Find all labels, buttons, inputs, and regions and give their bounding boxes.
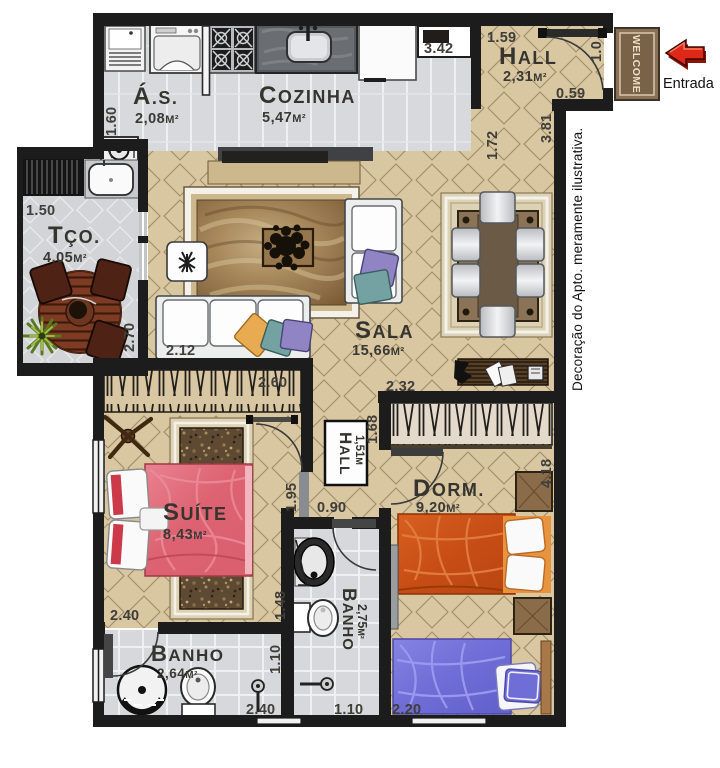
svg-text:2.12: 2.12 — [166, 343, 195, 359]
svg-text:2.40: 2.40 — [110, 608, 139, 624]
svg-text:1.72: 1.72 — [485, 131, 501, 160]
svg-text:3.42: 3.42 — [424, 41, 453, 57]
svg-text:COZINHA: COZINHA — [259, 82, 356, 109]
svg-text:4.18: 4.18 — [539, 459, 555, 488]
svg-text:1.48: 1.48 — [273, 591, 289, 620]
svg-text:1.95: 1.95 — [284, 483, 300, 512]
svg-text:5,47M²: 5,47M² — [262, 110, 306, 126]
svg-text:1.68: 1.68 — [365, 415, 381, 444]
svg-text:4,05M²: 4,05M² — [43, 250, 87, 266]
svg-text:SALA: SALA — [355, 317, 414, 344]
svg-text:2,75M²: 2,75M² — [355, 604, 369, 639]
svg-text:9,20M²: 9,20M² — [416, 500, 460, 516]
svg-text:15,66M²: 15,66M² — [352, 343, 405, 359]
svg-text:2,31M²: 2,31M² — [503, 69, 547, 85]
svg-text:HALL: HALL — [336, 432, 355, 476]
svg-text:1.59: 1.59 — [487, 30, 516, 46]
svg-text:1,51M: 1,51M — [353, 435, 365, 465]
svg-text:2.40: 2.40 — [246, 702, 275, 718]
svg-text:2.70: 2.70 — [122, 323, 138, 352]
svg-text:WELCOME: WELCOME — [630, 35, 642, 93]
svg-text:HALL: HALL — [499, 43, 557, 70]
svg-text:Entrada: Entrada — [663, 76, 715, 92]
svg-text:2,08M²: 2,08M² — [135, 111, 179, 127]
svg-text:1.0: 1.0 — [589, 41, 605, 62]
svg-text:DORM.: DORM. — [413, 475, 485, 502]
svg-text:SUÍTE: SUÍTE — [163, 499, 228, 526]
svg-text:1.50: 1.50 — [26, 203, 55, 219]
svg-text:1.10: 1.10 — [268, 645, 284, 674]
svg-text:3.81: 3.81 — [539, 114, 555, 143]
svg-text:0.90: 0.90 — [317, 500, 346, 516]
svg-text:1.10: 1.10 — [334, 702, 363, 718]
svg-text:2.20: 2.20 — [392, 702, 421, 718]
svg-text:1.60: 1.60 — [104, 107, 120, 136]
svg-text:Decoração do Apto. meramente i: Decoração do Apto. meramente ilustrativa… — [570, 128, 585, 391]
svg-text:0.59: 0.59 — [556, 86, 585, 102]
svg-text:TÇO.: TÇO. — [48, 222, 101, 249]
svg-text:8,43M²: 8,43M² — [163, 527, 207, 543]
svg-text:2.32: 2.32 — [386, 379, 415, 395]
svg-text:2.60: 2.60 — [258, 375, 287, 391]
